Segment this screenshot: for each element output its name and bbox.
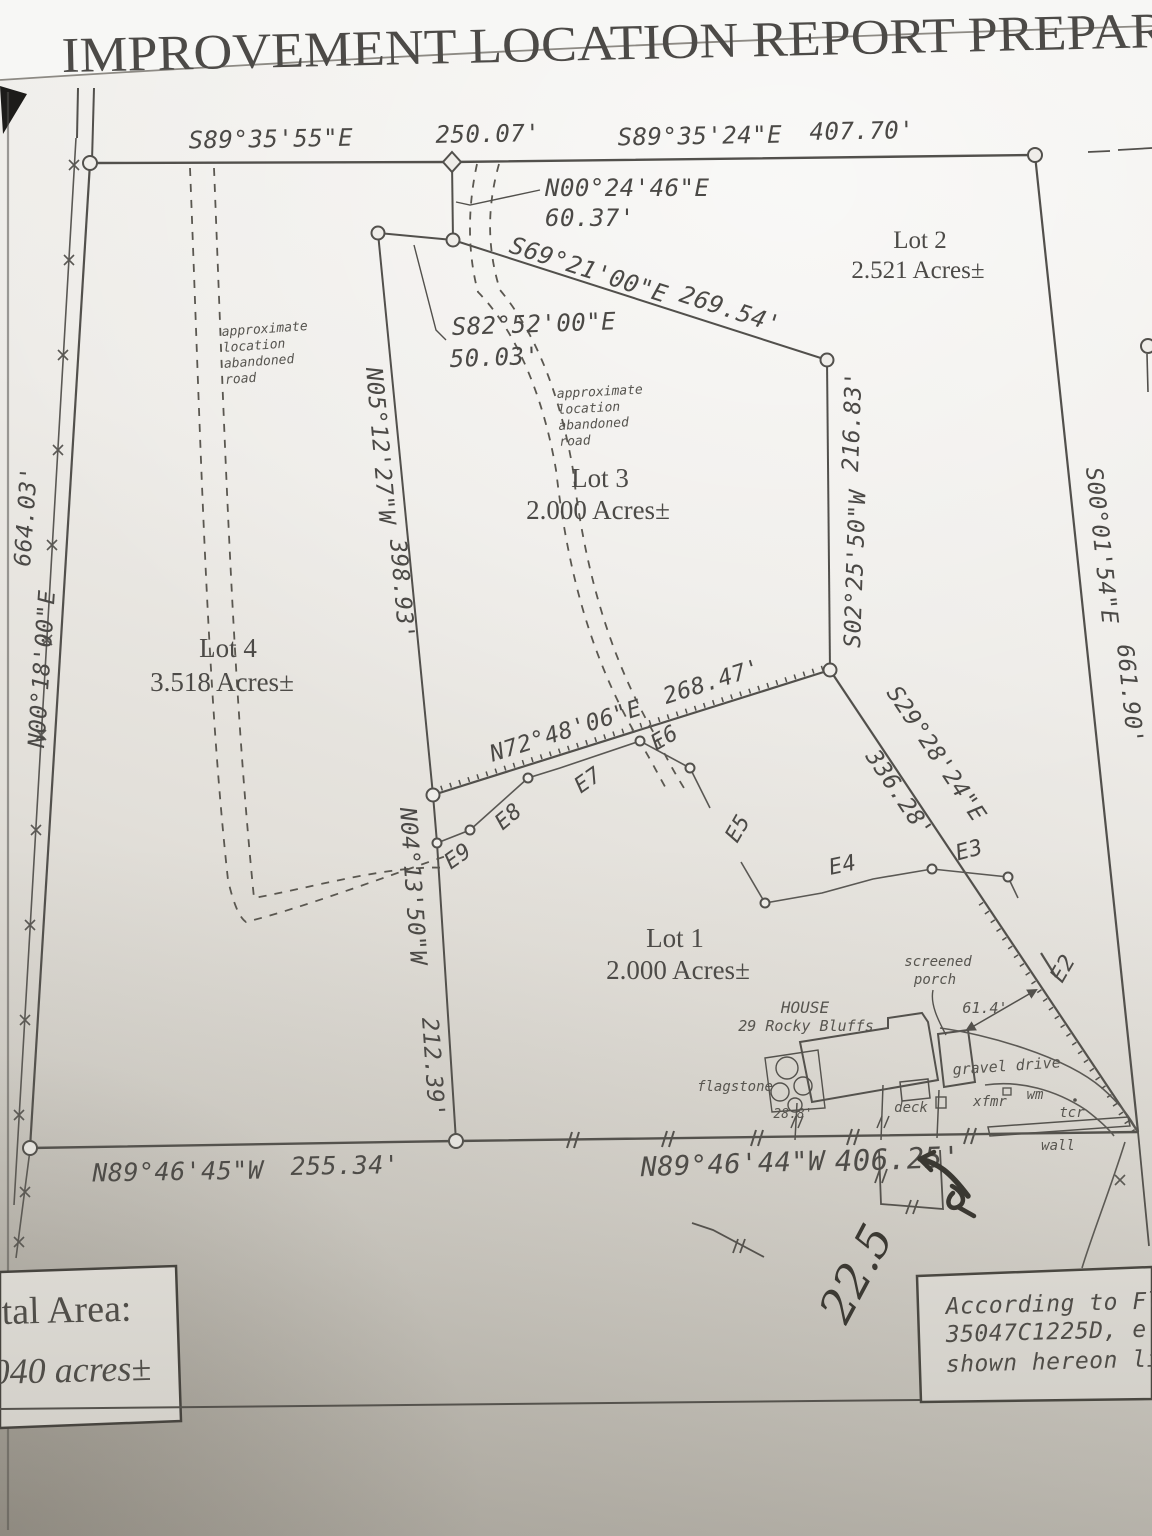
utility-point-marker [636, 737, 645, 746]
corner-marker [427, 789, 440, 802]
corner-marker [83, 156, 97, 170]
bearing-n0512-distance: 398.93' [384, 537, 419, 640]
bearing-s8252-distance: 50.03' [449, 342, 540, 373]
bearing-bottom-left-distance: 255.34' [290, 1150, 399, 1181]
lot4-area: 3.518 Acres± [150, 667, 294, 697]
utility-point-marker [928, 865, 937, 874]
house-label-line2: 29 Rocky Bluffs [738, 1017, 873, 1035]
flagstone-dimension-label: 28.8' [773, 1107, 812, 1122]
abandoned-road-west-2 [214, 168, 448, 898]
corner-marker-partial [1141, 339, 1152, 353]
fence-west [14, 138, 1125, 1258]
total-area-label: tal Area: [1, 1288, 132, 1333]
lot4-name: Lot 4 [199, 633, 257, 663]
road-note-line: approximate [221, 319, 308, 340]
utility-point-marker [466, 826, 475, 835]
handwritten-number: 22.5 [808, 1215, 904, 1332]
utility-label-e8: E8 [490, 799, 527, 836]
bearing-bottom-right-distance: 406.25' [834, 1140, 961, 1178]
boundary-north [90, 155, 1035, 163]
lot1-area: 2.000 Acres± [606, 955, 750, 985]
utility-point-marker [761, 899, 770, 908]
bearing-s0225-distance: 216.83' [838, 371, 867, 472]
bearing-n0413-distance: 212.39' [416, 1017, 449, 1119]
bearing-s8252-leader [414, 245, 446, 340]
lot3-name: Lot 3 [571, 463, 629, 493]
corner-marker [821, 354, 834, 367]
lot-line-n7248-ticks [432, 666, 829, 791]
corner-marker [447, 234, 460, 247]
flagstone-label: flagstone [697, 1079, 773, 1095]
abandoned-road-note-mid: approximate location abandoned road [556, 383, 645, 450]
lot-line-s8252 [378, 233, 453, 240]
road-note-line: road [225, 371, 257, 388]
bearing-labels-south: N89°46'45"W 255.34' N89°46'44"W 406.25' [91, 1140, 961, 1188]
bearing-n0024-direction: N00°24'46"E [544, 174, 709, 202]
boundary-north-extension [1088, 148, 1152, 152]
flood-note-box: According to Flo 35047C1225D, e shown he… [917, 1267, 1152, 1402]
total-area-box: tal Area: 040 acres± [0, 1266, 181, 1428]
house-label-line1: HOUSE [780, 998, 830, 1017]
corner-marker [1028, 148, 1042, 162]
bearing-top-left-direction: S89°35'55"E [188, 124, 353, 155]
bearing-n7248-direction: N72°48'06"E [486, 695, 645, 768]
bearing-s6921-direction: S69°21'00"E [506, 231, 671, 308]
deck-step [936, 1097, 946, 1108]
bearing-s6921-distance: 269.54' [676, 280, 784, 339]
corner-marker [449, 1134, 463, 1148]
lot-line-s0225 [827, 360, 830, 670]
gravel-drive-exit [1082, 1142, 1125, 1268]
corner-marker [372, 227, 385, 240]
utility-point-labels: E9 E8 E7 E6 E5 E4 E3 E2 [440, 721, 1081, 987]
utility-label-e4: E4 [827, 851, 859, 881]
flood-note-line1: According to Flo [943, 1288, 1152, 1320]
lot3-area: 2.000 Acres± [526, 495, 670, 525]
fence-stub-1 [77, 88, 78, 138]
bearing-labels-north: S89°35'55"E 250.07' S89°35'24"E 407.70' [188, 116, 914, 154]
rear-fence-diagonal [692, 1223, 764, 1257]
bearing-s0225-direction: S02°25'50"W [840, 488, 872, 648]
utility-point-marker [524, 774, 533, 783]
utility-point-marker [1004, 873, 1013, 882]
bearing-s8252-direction: S82°52'00"E [451, 307, 616, 341]
bearing-top-right-distance: 407.70' [809, 116, 914, 146]
bearing-west-distance: 664.03' [10, 465, 43, 567]
bearing-bottom-right-direction: N89°46'44"W [639, 1146, 828, 1184]
scan-corner-mark [0, 86, 27, 134]
lot1-name: Lot 1 [646, 923, 704, 953]
wall-label: wall [1041, 1138, 1075, 1154]
bearing-n0024-leader [456, 190, 540, 205]
bearing-bottom-left-direction: N89°46'45"W [91, 1155, 265, 1187]
corner-marker-diamond [443, 152, 461, 172]
wm-label: wm [1027, 1087, 1044, 1103]
road-note-line: abandoned [558, 415, 629, 434]
utility-label-e9: E9 [440, 839, 477, 875]
survey-plat-drawing: IMPROVEMENT LOCATION REPORT PREPAR [0, 0, 1152, 1536]
utility-label-e3: E3 [953, 835, 986, 866]
porch-label-line2: porch [913, 972, 956, 988]
flood-note-line3: shown hereon lie [945, 1346, 1152, 1378]
tcr-symbol [1073, 1098, 1077, 1102]
bearing-n7248-distance: 268.47' [660, 655, 764, 710]
flood-note-line2: 35047C1225D, e [944, 1317, 1146, 1348]
total-area-value: 040 acres± [0, 1348, 152, 1392]
flagstone-stones [765, 1050, 825, 1112]
corner-marker [824, 664, 837, 677]
porch-label-line1: screened [904, 954, 972, 970]
lot2-area: 2.521 Acres± [851, 257, 984, 284]
utility-label-e7: E7 [570, 762, 607, 798]
scanned-survey-page: IMPROVEMENT LOCATION REPORT PREPAR [0, 0, 1152, 1536]
lot2-name: Lot 2 [893, 227, 946, 254]
road-note-line: approximate [556, 383, 643, 402]
xfmr-label: xfmr [972, 1094, 1007, 1110]
boundary-stub [92, 88, 94, 161]
boundary-east-extension [1138, 1132, 1149, 1246]
corner-marker [23, 1141, 37, 1155]
corner-marker-stub [1147, 354, 1148, 392]
road-note-line: road [559, 433, 591, 450]
bearing-east-distance: 661.90' [1111, 643, 1147, 746]
utility-point-marker [433, 839, 442, 848]
bearing-n0024-distance: 60.37' [545, 204, 635, 232]
lot-line-n0024 [452, 162, 453, 240]
bearing-east-direction: S00°01'54"E [1080, 466, 1122, 626]
gravel-drive-label: gravel drive [952, 1053, 1061, 1079]
utility-label-e2: E2 [1046, 951, 1081, 987]
deck-label: deck [894, 1100, 928, 1116]
tcr-label: tcr [1059, 1105, 1085, 1121]
bearing-n0413-direction: N04°13'50"W [394, 806, 431, 968]
bearing-top-left-distance: 250.07' [435, 119, 540, 149]
abandoned-road-note-west: approximate location abandoned road [221, 319, 311, 388]
porch-dimension-label: 61.4' [962, 999, 1007, 1017]
utility-label-e5: E5 [721, 811, 756, 847]
bearing-top-right-direction: S89°35'24"E [617, 121, 782, 152]
utility-point-marker [686, 764, 695, 773]
